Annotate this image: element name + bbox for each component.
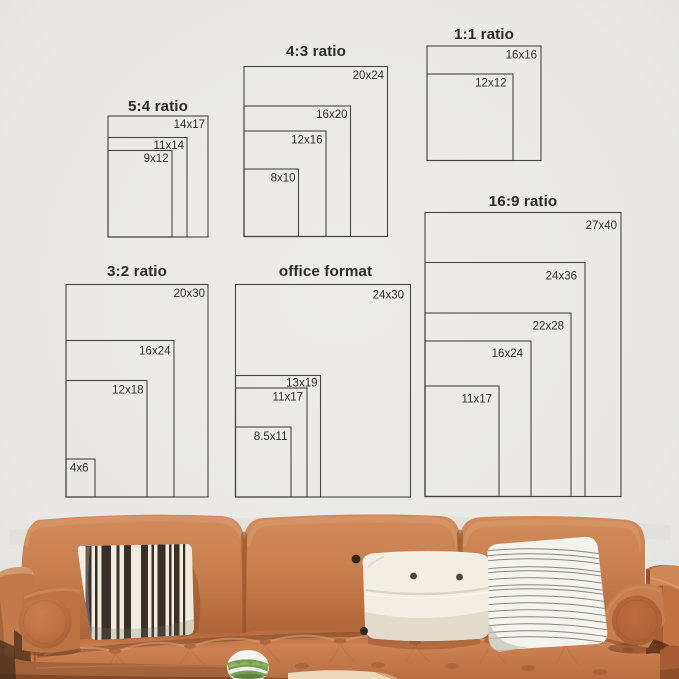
svg-text:24x36: 24x36 <box>546 271 577 283</box>
svg-text:3:2 ratio: 3:2 ratio <box>107 263 167 280</box>
svg-text:12x12: 12x12 <box>475 78 506 90</box>
svg-text:20x24: 20x24 <box>353 70 385 82</box>
svg-text:24x30: 24x30 <box>373 290 404 302</box>
svg-text:8x10: 8x10 <box>271 173 296 185</box>
svg-text:1:1 ratio: 1:1 ratio <box>454 26 514 43</box>
svg-text:4:3 ratio: 4:3 ratio <box>286 43 346 60</box>
svg-text:5:4 ratio: 5:4 ratio <box>128 98 188 115</box>
svg-text:16x20: 16x20 <box>316 109 347 121</box>
svg-text:4x6: 4x6 <box>70 463 89 475</box>
svg-text:12x18: 12x18 <box>112 385 143 397</box>
svg-text:16x24: 16x24 <box>139 346 171 358</box>
svg-text:16:9 ratio: 16:9 ratio <box>489 193 558 210</box>
svg-text:12x16: 12x16 <box>291 135 322 147</box>
svg-text:27x40: 27x40 <box>586 220 617 232</box>
svg-text:16x16: 16x16 <box>506 50 537 62</box>
svg-text:22x28: 22x28 <box>533 321 564 333</box>
svg-text:16x24: 16x24 <box>492 348 524 360</box>
svg-text:8.5x11: 8.5x11 <box>254 431 288 443</box>
svg-text:14x17: 14x17 <box>174 119 205 131</box>
svg-text:office format: office format <box>279 263 372 280</box>
svg-text:20x30: 20x30 <box>174 288 205 300</box>
svg-text:11x17: 11x17 <box>462 394 492 406</box>
svg-text:11x17: 11x17 <box>273 392 303 404</box>
svg-text:9x12: 9x12 <box>144 153 169 165</box>
